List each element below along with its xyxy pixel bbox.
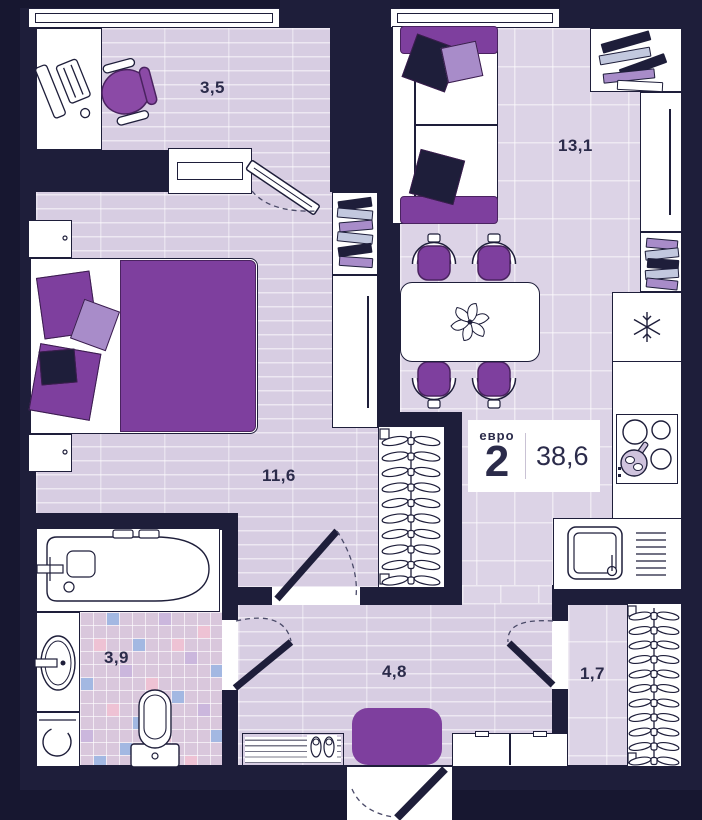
entry-door-opening bbox=[347, 767, 452, 788]
stove bbox=[616, 414, 678, 484]
mosaic-tile bbox=[172, 639, 184, 651]
mosaic-tile bbox=[159, 613, 171, 625]
entry-porch bbox=[347, 788, 452, 820]
wall-bathroom-right-upper bbox=[222, 513, 238, 620]
wall-bathroom-right-lower bbox=[222, 690, 238, 767]
book bbox=[337, 207, 374, 220]
cabinet-handle bbox=[475, 731, 489, 737]
bathroom-door-opening bbox=[222, 620, 238, 690]
wall-outer-right bbox=[682, 0, 702, 790]
toilet bbox=[128, 686, 182, 770]
pouf bbox=[352, 708, 442, 765]
snowflake-icon bbox=[629, 309, 665, 345]
bathtub-icon bbox=[37, 529, 217, 609]
wall-divider-lower bbox=[442, 430, 462, 605]
room-label-bathroom: 3,9 bbox=[104, 648, 129, 668]
washing-machine bbox=[36, 712, 80, 767]
wall-bedroom-living-divider bbox=[378, 192, 400, 412]
mosaic-tile bbox=[198, 626, 210, 638]
room-label-balcony: 3,5 bbox=[200, 78, 225, 98]
wardrobe-cabinet-bedroom bbox=[332, 275, 378, 428]
mosaic-tile bbox=[198, 704, 210, 716]
bookshelf-mid bbox=[640, 232, 682, 292]
book bbox=[646, 277, 679, 290]
floor-plan: 3,5 13,1 11,6 3,9 4,8 1,7 евро 2 38,6 bbox=[0, 0, 702, 820]
hanger-rack-wardrobe bbox=[627, 603, 682, 767]
dining-chair bbox=[466, 354, 522, 412]
dining-chair bbox=[406, 354, 462, 412]
unit-area-value: 38,6 bbox=[536, 441, 589, 472]
room-label-hallway: 4,8 bbox=[382, 662, 407, 682]
kitchen-sink-counter bbox=[553, 518, 682, 590]
wardrobe-cabinet-living bbox=[640, 92, 682, 232]
computer-icon bbox=[37, 29, 103, 151]
nightstand-top bbox=[28, 220, 72, 258]
mosaic-tile bbox=[81, 678, 93, 690]
wall-top-right bbox=[560, 0, 682, 28]
wall-balcony-bottom bbox=[20, 150, 170, 192]
hallway-cabinet bbox=[452, 733, 568, 767]
unit-type: евро 2 bbox=[479, 429, 514, 484]
book bbox=[339, 220, 374, 233]
bookshelf-top bbox=[590, 28, 682, 92]
hangers-icon bbox=[379, 427, 443, 586]
bathtub bbox=[36, 528, 220, 612]
washing-machine-icon bbox=[37, 713, 78, 765]
living-window bbox=[390, 8, 560, 28]
mosaic-tile bbox=[107, 704, 119, 716]
book bbox=[617, 80, 663, 92]
fridge bbox=[612, 292, 682, 362]
mosaic-tile bbox=[133, 639, 145, 651]
balcony-glazing bbox=[28, 8, 280, 28]
hanger-rack-bedroom bbox=[378, 426, 445, 588]
wall-wardrobe-left-upper bbox=[552, 603, 568, 621]
book bbox=[339, 256, 374, 268]
office-chair bbox=[96, 50, 162, 134]
bed-blanket bbox=[120, 260, 256, 432]
room-label-wardrobe: 1,7 bbox=[580, 664, 605, 684]
pan-icon bbox=[621, 441, 649, 476]
unit-rooms-number: 2 bbox=[485, 440, 509, 484]
bed-pillow-dark bbox=[39, 348, 78, 385]
sink-icon bbox=[554, 519, 680, 588]
slippers-icon bbox=[307, 735, 337, 759]
cabinet-handle bbox=[533, 731, 547, 737]
desk bbox=[36, 28, 102, 150]
stove-burners bbox=[617, 415, 676, 482]
washbasin-icon bbox=[37, 613, 78, 710]
badge-divider bbox=[525, 433, 527, 479]
room-label-bedroom: 11,6 bbox=[262, 466, 296, 486]
room-label-living-kitchen: 13,1 bbox=[558, 136, 593, 156]
shoe-rack bbox=[242, 733, 344, 767]
mosaic-tile bbox=[211, 730, 223, 742]
mosaic-tile bbox=[107, 613, 119, 625]
sofa-pillow-light bbox=[441, 41, 484, 84]
bedroom-door-opening bbox=[272, 587, 360, 605]
balcony-door-window-unit bbox=[168, 148, 252, 194]
mosaic-tile bbox=[185, 652, 197, 664]
mosaic-tile bbox=[81, 730, 93, 742]
passage-floor bbox=[462, 585, 552, 605]
nightstand-bottom bbox=[28, 434, 72, 472]
washbasin bbox=[36, 612, 80, 712]
wardrobe-door-opening bbox=[552, 621, 568, 689]
wall-balcony-living-pier bbox=[330, 0, 400, 192]
wall-bedroom-south-right bbox=[360, 587, 442, 605]
dining-chair bbox=[406, 230, 462, 288]
mosaic-tile bbox=[211, 665, 223, 677]
hangers-icon bbox=[628, 604, 680, 765]
dining-chair bbox=[466, 230, 522, 288]
flower-icon bbox=[448, 300, 492, 344]
unit-badge: евро 2 38,6 bbox=[468, 420, 600, 492]
bookshelf-bedroom bbox=[332, 192, 378, 275]
